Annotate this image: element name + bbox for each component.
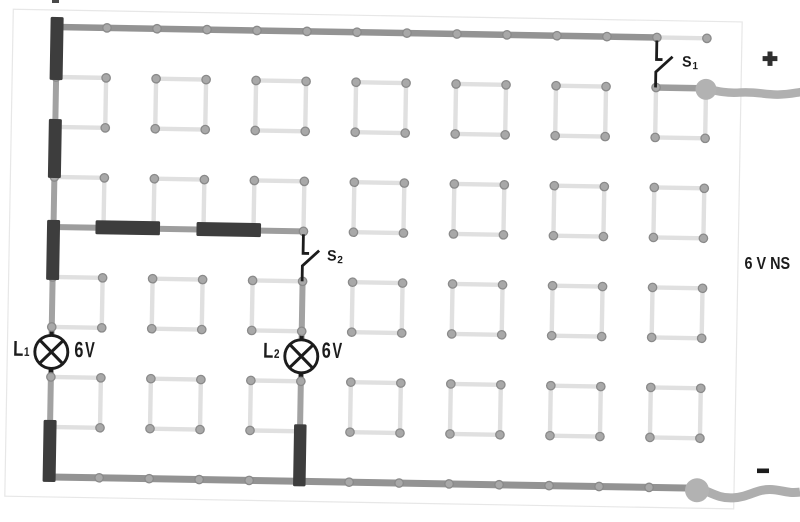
svg-text:L: L <box>13 338 24 362</box>
svg-text:S: S <box>682 54 692 71</box>
svg-text:2: 2 <box>274 348 280 361</box>
svg-text:V: V <box>332 338 343 363</box>
svg-text:1: 1 <box>24 346 30 359</box>
svg-text:L: L <box>263 340 274 364</box>
svg-text:6: 6 <box>322 338 332 363</box>
svg-text:6 V NS: 6 V NS <box>745 254 791 274</box>
svg-text:S: S <box>327 248 337 265</box>
svg-text:6: 6 <box>74 338 84 363</box>
svg-text:2: 2 <box>337 255 343 266</box>
svg-text:V: V <box>85 337 96 362</box>
svg-text:1: 1 <box>692 61 698 72</box>
